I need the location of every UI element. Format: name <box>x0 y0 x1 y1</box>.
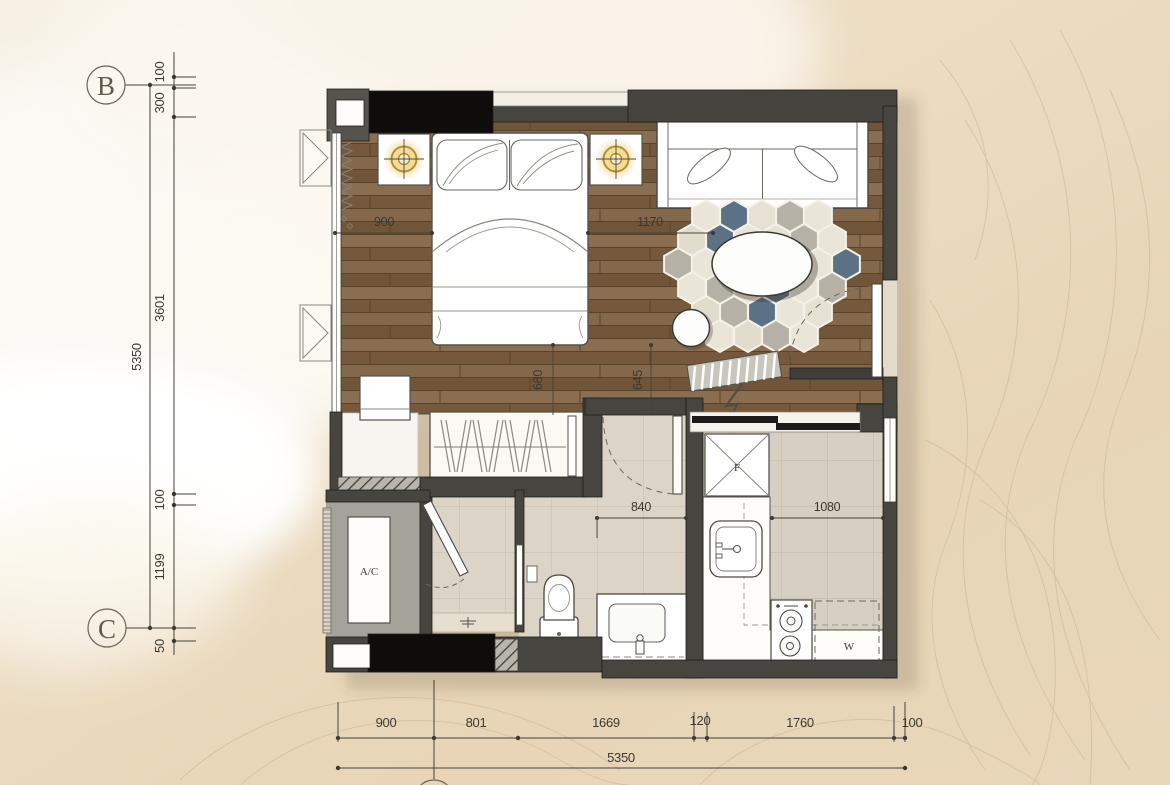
shower-floor <box>426 490 515 632</box>
left-dimension-labels: 100 300 3601 100 1199 50 5350 <box>129 62 167 653</box>
washer-label: W <box>844 641 855 653</box>
wardrobe-mirror <box>568 416 576 476</box>
dim-label: 900 <box>376 715 397 730</box>
ac-label: A/C <box>360 566 378 578</box>
pillow <box>437 140 507 190</box>
grid-markers: B C <box>87 66 126 647</box>
dim-label: 3601 <box>152 294 167 322</box>
dim-label: 1170 <box>637 215 663 229</box>
top-wall-thick <box>628 90 897 122</box>
structural-column <box>368 91 493 133</box>
grid-marker-b-label: B <box>97 71 115 101</box>
fridge-label: F <box>734 462 740 474</box>
dim-label: 1669 <box>592 715 620 730</box>
dim-label: 300 <box>152 93 167 114</box>
stove <box>771 600 812 662</box>
kitchen-sliding-door <box>690 412 860 432</box>
wall-niche <box>333 644 370 668</box>
wardrobe-alcove-floor <box>338 413 418 478</box>
fridge: F <box>705 434 769 496</box>
wall <box>420 477 585 497</box>
kitchen-sink <box>710 521 762 577</box>
bottom-wall-right <box>602 660 897 678</box>
wall-niche <box>336 100 364 126</box>
dim-total-label: 5350 <box>607 750 635 765</box>
flush-plate <box>527 566 537 582</box>
faucet-icon <box>636 641 644 654</box>
bed <box>432 133 588 345</box>
dim-total-label: 5350 <box>129 343 144 371</box>
shower-glass <box>517 545 523 625</box>
bottom-dimension-lines <box>336 680 907 785</box>
dim-label: 1199 <box>152 554 167 581</box>
window-cabinet <box>360 376 410 420</box>
beach-background: A/C <box>0 0 1170 785</box>
shower-sill <box>426 613 515 632</box>
entry-threshold <box>883 280 897 378</box>
top-wall-gap <box>493 92 628 106</box>
hatched-wall <box>495 639 518 671</box>
dim-label: 645 <box>631 370 645 390</box>
ceiling-lamp-icon <box>595 138 637 180</box>
wardrobe <box>430 412 585 480</box>
dim-label: 680 <box>531 370 545 390</box>
dim-label: 100 <box>902 715 923 730</box>
ceiling-lamp-icon <box>383 138 425 180</box>
dim-label: 1080 <box>814 500 841 514</box>
dim-label: 1760 <box>786 715 814 730</box>
pillow <box>511 140 582 190</box>
floor-plan-drawing: A/C <box>0 0 1170 785</box>
sofa <box>657 120 868 208</box>
dim-label: 100 <box>152 62 167 83</box>
grid-marker-c-label: C <box>98 614 116 644</box>
dim-label: 120 <box>690 713 711 728</box>
dim-label: 840 <box>631 500 651 514</box>
dim-label: 50 <box>152 639 167 653</box>
structural-column <box>368 634 495 672</box>
bathroom-kitchen-wall <box>686 398 703 678</box>
dim-label: 900 <box>374 215 394 229</box>
ledge-louver <box>323 508 331 633</box>
window-swing-symbol <box>300 130 331 361</box>
dim-label: 801 <box>466 715 487 730</box>
wall <box>326 490 430 502</box>
right-wall-upper <box>883 106 897 280</box>
vanity-sink <box>597 594 688 663</box>
dim-label: 100 <box>152 490 167 511</box>
wall <box>585 398 686 415</box>
ac-unit: A/C <box>348 517 390 623</box>
entry-nook-wall <box>790 368 883 379</box>
grid-marker-circle-partial <box>414 780 454 785</box>
